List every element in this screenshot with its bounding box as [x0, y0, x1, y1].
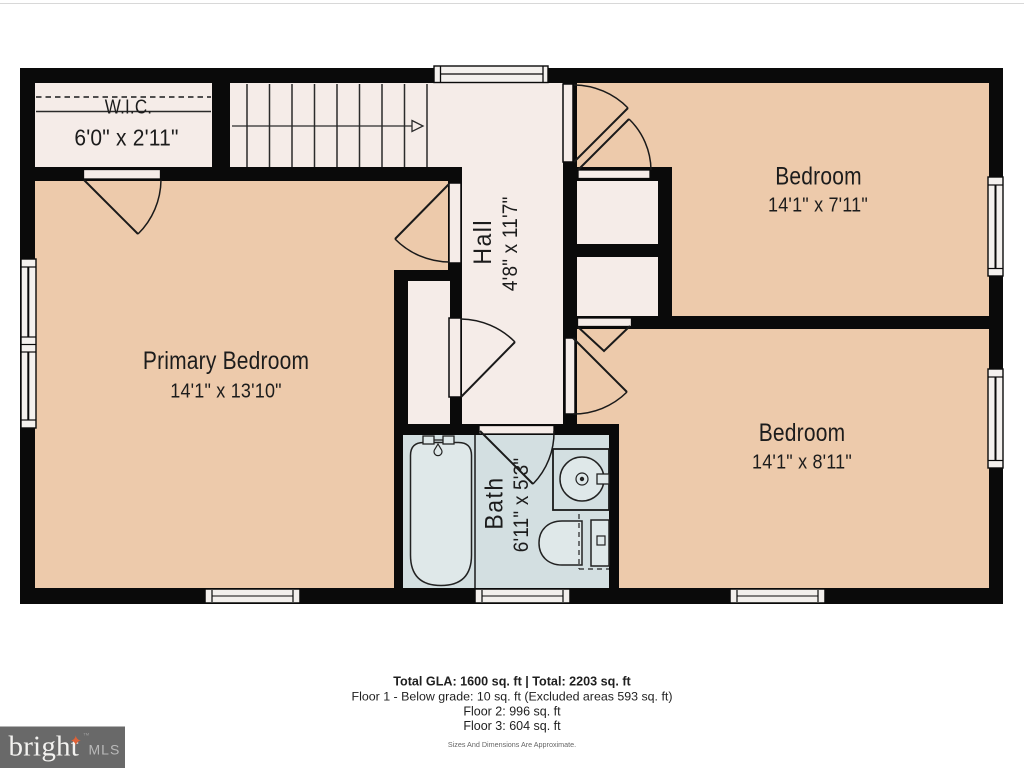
svg-text:Bedroom: Bedroom — [775, 162, 862, 190]
svg-text:Primary Bedroom: Primary Bedroom — [143, 346, 309, 374]
svg-text:MLS: MLS — [89, 741, 121, 757]
svg-text:Total GLA: 1600 sq. ft | Total: Total GLA: 1600 sq. ft | Total: 2203 sq.… — [393, 675, 631, 689]
svg-text:4'8" x 11'7": 4'8" x 11'7" — [499, 196, 522, 291]
svg-text:Bath: Bath — [481, 476, 509, 529]
svg-text:6'11" x 5'3": 6'11" x 5'3" — [510, 458, 533, 553]
svg-text:✦: ✦ — [70, 733, 83, 750]
svg-text:Floor 2: 996 sq. ft: Floor 2: 996 sq. ft — [463, 705, 561, 719]
svg-text:14'1" x 8'11": 14'1" x 8'11" — [752, 452, 852, 474]
svg-text:14'1" x 7'11": 14'1" x 7'11" — [768, 194, 868, 216]
svg-text:W.I.C.: W.I.C. — [105, 95, 152, 118]
svg-text:Bedroom: Bedroom — [759, 418, 846, 446]
svg-text:14'1" x 13'10": 14'1" x 13'10" — [170, 381, 282, 403]
svg-text:™: ™ — [83, 733, 90, 740]
svg-text:Floor 3: 604 sq. ft: Floor 3: 604 sq. ft — [463, 719, 561, 733]
svg-text:bright: bright — [9, 731, 79, 763]
svg-text:Sizes And Dimensions Are Appro: Sizes And Dimensions Are Approximate. — [448, 740, 576, 749]
svg-text:6'0" x 2'11": 6'0" x 2'11" — [74, 125, 178, 151]
svg-text:Hall: Hall — [469, 219, 497, 265]
svg-text:Floor 1 - Below grade: 10 sq.: Floor 1 - Below grade: 10 sq. ft (Exclud… — [352, 690, 673, 704]
